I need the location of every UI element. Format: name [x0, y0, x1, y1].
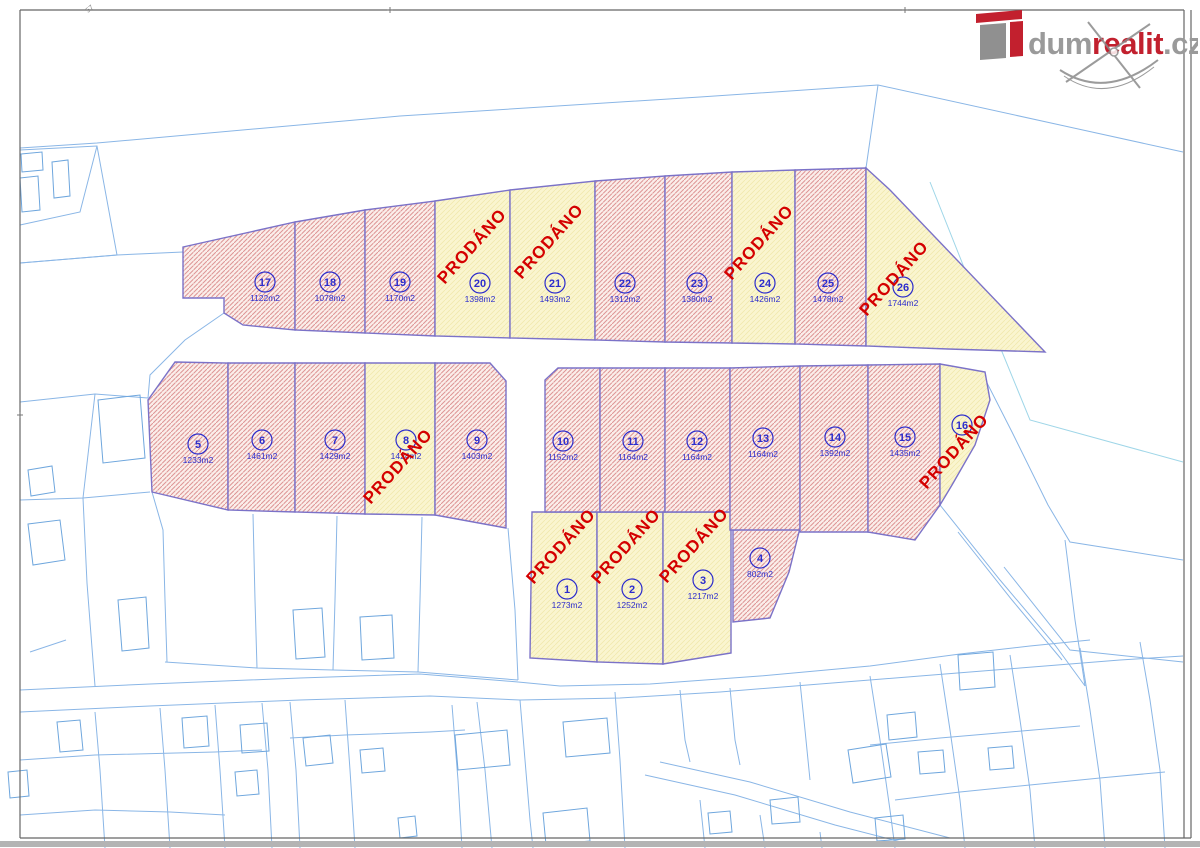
logo-cz: .cz: [1163, 26, 1198, 61]
building-outline: [98, 395, 145, 463]
building-outline: [398, 816, 417, 838]
plot-area: 1744m2: [888, 298, 919, 308]
building-outline: [543, 808, 590, 845]
plot-area: 1493m2: [540, 294, 571, 304]
building-outline: [360, 615, 394, 660]
plot-number: 9: [474, 435, 480, 447]
building-outline: [918, 750, 945, 774]
building-outline: [887, 712, 917, 740]
building-outline: [563, 718, 610, 757]
building-outline: [293, 608, 325, 659]
building-outline: [52, 160, 70, 198]
building-outline: [708, 811, 732, 834]
building-outline: [240, 723, 269, 753]
logo-dum: dum: [1028, 26, 1092, 61]
building-outline: [235, 770, 259, 796]
building-outline: [182, 716, 209, 748]
plot-area: 1170m2: [385, 293, 415, 303]
plot-area: 1122m2: [250, 293, 280, 303]
building-outline: [958, 652, 995, 690]
plot-number: 1: [564, 584, 570, 596]
building-outline: [360, 748, 385, 773]
frame-shadow-band: [0, 841, 1200, 847]
building-outline: [57, 720, 83, 752]
plot-number: 5: [195, 439, 201, 451]
plot-number: 20: [474, 278, 486, 290]
plot-area: 1392m2: [820, 448, 851, 458]
plot-19: [365, 201, 435, 336]
dumrealit-logo: dumrealit.cz: [966, 4, 1198, 96]
building-outline: [28, 520, 65, 565]
plot-area: 1164m2: [618, 452, 648, 462]
building-outline: [28, 466, 55, 496]
plot-number: 19: [394, 277, 406, 289]
plot-area: 1398m2: [465, 294, 496, 304]
plot-area: 1435m2: [890, 448, 921, 458]
plot-area: 1164m2: [748, 449, 778, 459]
plot-area: 1380m2: [682, 294, 713, 304]
plot-23: [665, 172, 732, 343]
building-outline: [988, 746, 1014, 770]
plot-area: 802m2: [747, 569, 773, 579]
plot-area: 1478m2: [813, 294, 844, 304]
cadastral-map: 11273m2PRODÁNO21252m2PRODÁNO31217m2PRODÁ…: [0, 0, 1200, 848]
building-outline: [848, 744, 891, 783]
building-outline: [20, 176, 40, 212]
plot-5: [148, 362, 228, 510]
plot-area: 1426m2: [750, 294, 781, 304]
plot-area: 1217m2: [688, 591, 719, 601]
plot-number: 18: [324, 277, 336, 289]
building-outline: [8, 770, 29, 798]
plot-number: 23: [691, 278, 703, 290]
cadastral-map-page: 11273m2PRODÁNO21252m2PRODÁNO31217m2PRODÁ…: [0, 0, 1200, 848]
house-icon: [976, 10, 1023, 60]
plot-number: 11: [627, 436, 639, 448]
plot-number: 24: [759, 278, 772, 290]
plot-area: 1403m2: [462, 451, 493, 461]
building-outline: [875, 815, 905, 841]
plot-number: 2: [629, 584, 635, 596]
plot-area: 1164m2: [682, 452, 712, 462]
plot-area: 1429m2: [320, 451, 351, 461]
plot-number: 6: [259, 435, 265, 447]
plot-number: 22: [619, 278, 631, 290]
plot-number: 21: [549, 278, 561, 290]
building-outline: [21, 152, 43, 172]
plot-7: [295, 363, 365, 514]
plot-number: 3: [700, 575, 706, 587]
plot-number: 12: [691, 436, 703, 448]
plot-area: 1312m2: [610, 294, 641, 304]
plot-area: 1078m2: [315, 293, 346, 303]
plot-area: 1273m2: [552, 600, 583, 610]
building-outline: [118, 597, 149, 651]
building-outline: [303, 735, 333, 766]
plot-area: 1152m2: [548, 452, 578, 462]
plot-number: 7: [332, 435, 338, 447]
plot-area: 1252m2: [617, 600, 648, 610]
plot-number: 10: [557, 436, 569, 448]
plot-number: 25: [822, 278, 834, 290]
plot-22: [595, 176, 665, 342]
plot-number: 17: [259, 277, 271, 289]
plot-number: 14: [829, 432, 842, 444]
plot-number: 13: [757, 433, 769, 445]
plot-25: [795, 168, 866, 346]
building-outline: [770, 797, 800, 824]
plot-number: 15: [899, 432, 911, 444]
plot-9: [435, 363, 506, 528]
plot-number: 4: [757, 553, 764, 565]
building-outline: [455, 730, 510, 770]
plot-area: 1233m2: [183, 455, 214, 465]
plot-area: 1461m2: [247, 451, 278, 461]
